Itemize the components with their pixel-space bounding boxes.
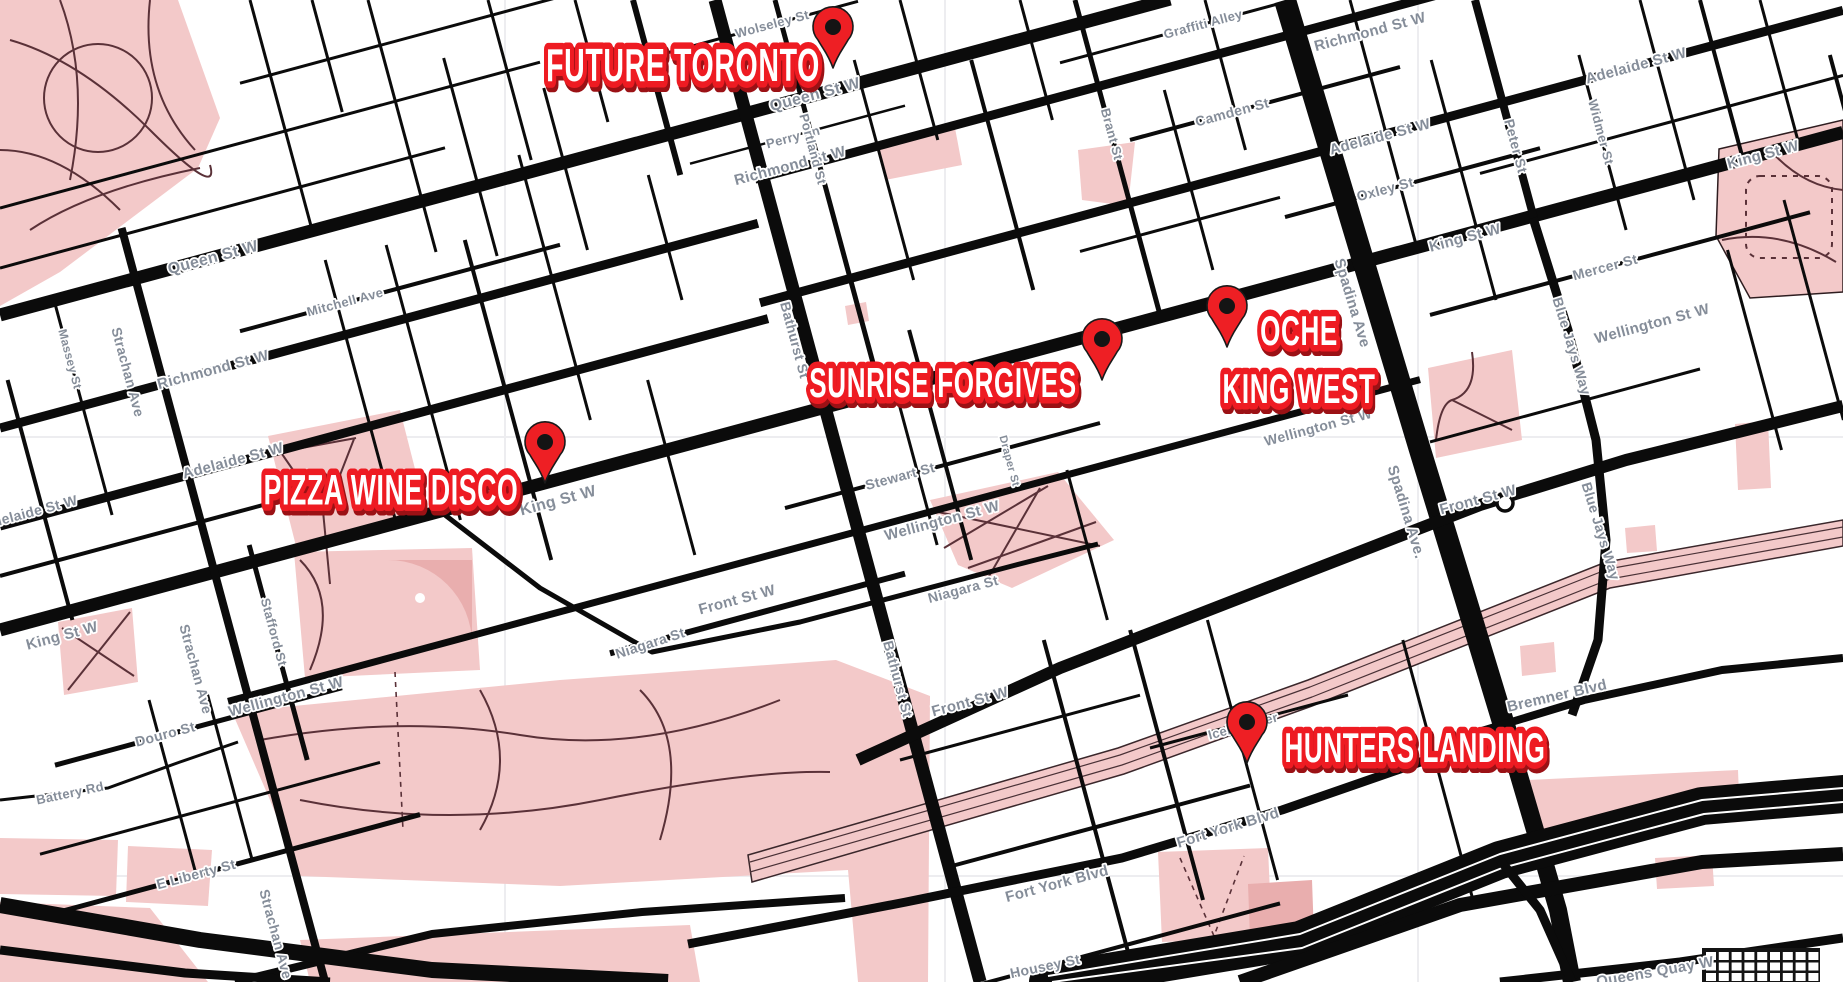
street-label-queen-st-w: Queen St W [166, 238, 261, 279]
street-label-battery-rd: Battery Rd [35, 779, 105, 808]
street-label-mitchell-ave: Mitchell Ave [305, 285, 385, 320]
street-label-wolseley-st: Wolseley St [733, 7, 811, 41]
street-label-king-st-w: King St W [1427, 220, 1503, 256]
street-label-graffiti-alley: Graffiti Alley [1162, 6, 1245, 42]
venue-label-text: KING WEST [1222, 366, 1375, 413]
street-label-strachan-ave: Strachan Ave [256, 887, 295, 980]
map-pin-hunters-landing[interactable] [1227, 702, 1267, 763]
street-label-oxley-st: Oxley St [1355, 174, 1416, 205]
venue-label-text: HUNTERS LANDING [1285, 725, 1546, 772]
venue-label-text: OCHE [1260, 308, 1338, 355]
street-label-massey-st: Massey St [55, 328, 84, 391]
street-label-douro-st: Douro St [133, 718, 197, 749]
venue-label-hunters-landing: HUNTERS LANDINGHUNTERS LANDINGHUNTERS LA… [1285, 725, 1548, 776]
map-pin-sunrise-forgives[interactable] [1082, 319, 1122, 380]
street-label-draper-st: Draper St [996, 434, 1021, 488]
street-label-niagara-st: Niagara St [613, 624, 687, 662]
street-label-stewart-st: Stewart St [863, 459, 936, 493]
venue-label-pizza-wine-disco: PIZZA WINE DISCOPIZZA WINE DISCOPIZZA WI… [264, 466, 521, 518]
street-label-strachan-ave: Strachan Ave [176, 622, 215, 715]
venue-label-future-toronto: FUTURE TORONTOFUTURE TORONTOFUTURE TORON… [546, 40, 822, 96]
street-label-strachan-ave: Strachan Ave [108, 325, 147, 418]
street-label-adelaide-st-w: Adelaide St W [1584, 44, 1689, 87]
map-pin-oche-king-west[interactable] [1207, 286, 1247, 347]
street-label-mercer-st: Mercer St [1571, 251, 1639, 284]
street-label-blue-jays-way: Blue Jays Way [1550, 295, 1595, 397]
map-viewport[interactable]: Queen St WQueen St WRichmond St WRichmon… [0, 0, 1843, 982]
toronto-street-map[interactable]: Queen St WQueen St WRichmond St WRichmon… [0, 0, 1843, 982]
street-label-stafford-st: Stafford St [258, 596, 291, 668]
street-label-front-st-w: Front St W [1438, 481, 1519, 518]
venue-label-text: FUTURE TORONTO [546, 40, 820, 92]
street-label-wellington-st-w: Wellington St W [1593, 300, 1712, 347]
marina-docks-layer [1702, 948, 1820, 982]
venue-label-text: PIZZA WINE DISCO [264, 466, 519, 514]
street-label-richmond-st-w: Richmond St W [155, 347, 271, 393]
venue-label-text: SUNRISE FORGIVES [809, 360, 1076, 407]
venue-label-sunrise-forgives: SUNRISE FORGIVESSUNRISE FORGIVESSUNRISE … [809, 360, 1078, 411]
street-label-widmer-st: Widmer St [1585, 98, 1617, 167]
street-label-fort-york-blvd: Fort York Blvd [1175, 804, 1282, 851]
